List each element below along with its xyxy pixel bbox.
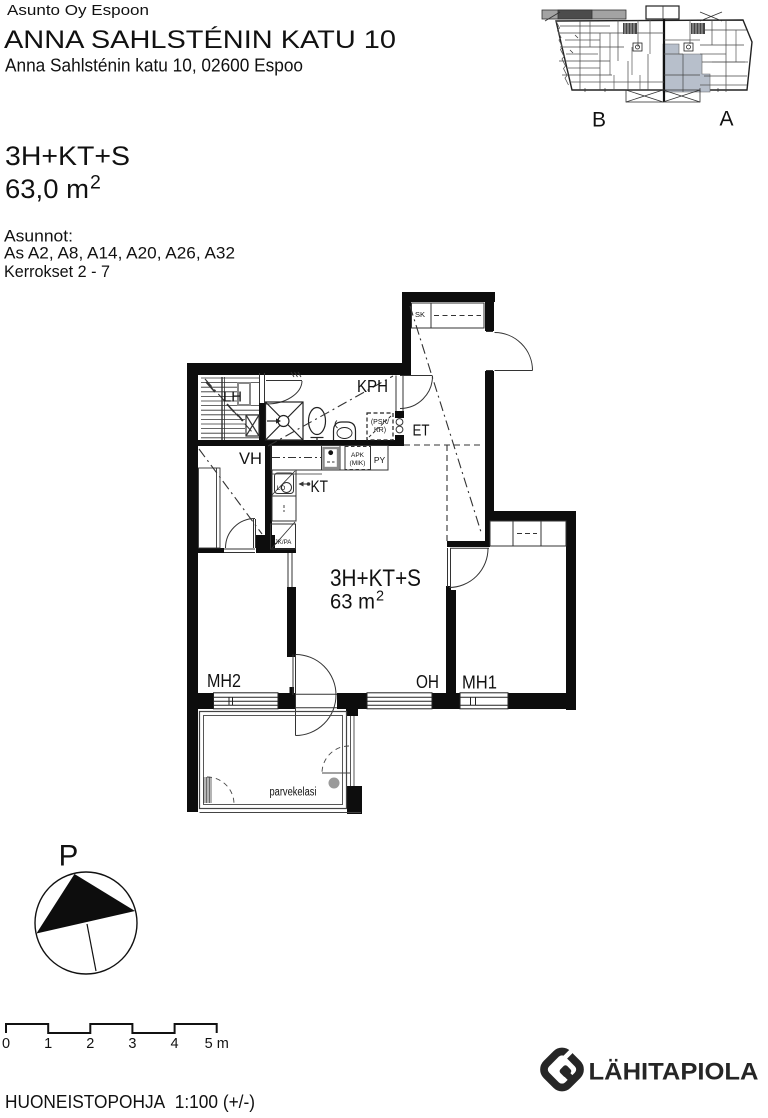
svg-text:2: 2 <box>90 172 101 194</box>
svg-text:2: 2 <box>86 1036 94 1052</box>
svg-text:parvekelasi: parvekelasi <box>270 787 317 799</box>
svg-text:KT: KT <box>311 477 329 496</box>
svg-text:Kerrokset 2 - 7: Kerrokset 2 - 7 <box>4 262 110 281</box>
svg-text:B: B <box>592 109 606 132</box>
svg-text:(MIK): (MIK) <box>350 460 366 467</box>
svg-text:JK/PA: JK/PA <box>275 539 293 546</box>
svg-text:HUONEISTOPOHJA 1:100 (+/-): HUONEISTOPOHJA 1:100 (+/-) <box>5 1091 255 1112</box>
svg-text:LO: LO <box>277 485 286 492</box>
svg-text:SK: SK <box>415 310 425 319</box>
svg-text:0: 0 <box>2 1036 10 1052</box>
svg-text:(PSK/: (PSK/ <box>371 419 389 426</box>
svg-text:63,0 m: 63,0 m <box>5 174 89 204</box>
svg-text:Asunto Oy Espoon: Asunto Oy Espoon <box>7 2 149 19</box>
svg-text:Anna Sahlsténin katu 10, 02600: Anna Sahlsténin katu 10, 02600 Espoo <box>5 55 303 76</box>
svg-text:LÄHITAPIOLA: LÄHITAPIOLA <box>589 1059 759 1086</box>
svg-text:3: 3 <box>128 1036 136 1052</box>
svg-text:OH: OH <box>416 672 439 692</box>
svg-text:63 m: 63 m <box>330 590 375 614</box>
svg-text:4: 4 <box>171 1036 179 1052</box>
svg-text:2: 2 <box>376 589 384 605</box>
svg-text:KPH: KPH <box>357 376 388 396</box>
svg-text:ANNA SAHLSTÉNIN KATU 10: ANNA SAHLSTÉNIN KATU 10 <box>4 25 396 54</box>
svg-text:P: P <box>59 840 79 873</box>
svg-text:MH2: MH2 <box>207 671 241 691</box>
svg-text:KR): KR) <box>374 427 386 434</box>
svg-text:A: A <box>719 108 733 131</box>
svg-text:APK: APK <box>351 452 365 459</box>
svg-text:1: 1 <box>44 1036 52 1052</box>
svg-text:LH: LH <box>223 389 242 406</box>
svg-text:5 m: 5 m <box>205 1036 229 1052</box>
svg-text:ET: ET <box>413 423 430 440</box>
svg-text:PY: PY <box>374 455 386 465</box>
svg-text:MH1: MH1 <box>462 673 497 693</box>
svg-text:As A2, A8, A14, A20, A26, A32: As A2, A8, A14, A20, A26, A32 <box>4 244 235 263</box>
svg-text:VH: VH <box>239 450 262 468</box>
svg-text:3H+KT+S: 3H+KT+S <box>5 141 130 171</box>
